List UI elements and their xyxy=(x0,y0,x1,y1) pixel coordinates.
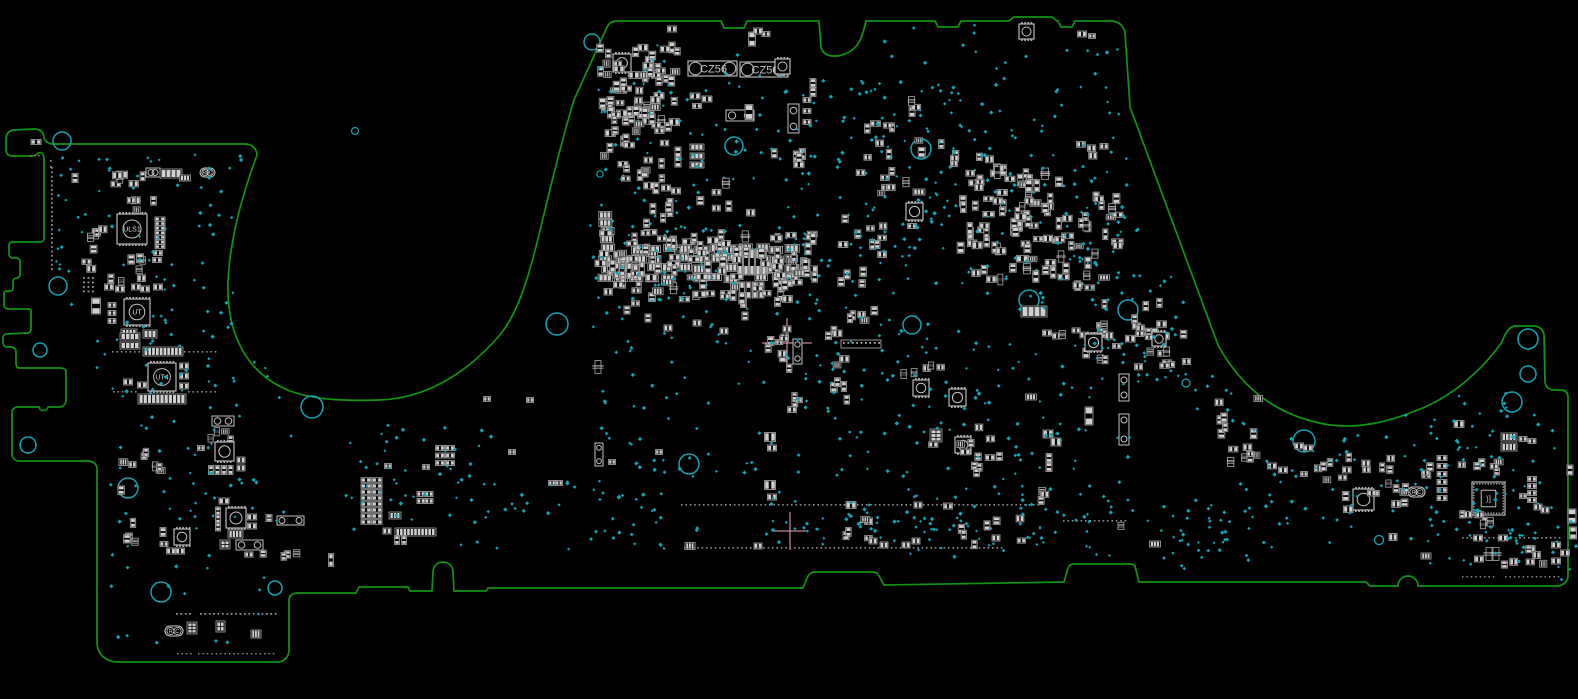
svg-text:CZ50: CZ50 xyxy=(752,64,779,76)
svg-text:)]: )] xyxy=(1486,495,1491,504)
svg-text:R1C: R1C xyxy=(169,629,179,635)
svg-text:R-C: R-C xyxy=(1412,490,1421,496)
svg-text:CZ56: CZ56 xyxy=(700,63,727,75)
svg-text:ULS1: ULS1 xyxy=(123,226,141,233)
svg-text:UT: UT xyxy=(132,309,142,316)
svg-text:R2C: R2C xyxy=(202,170,212,176)
